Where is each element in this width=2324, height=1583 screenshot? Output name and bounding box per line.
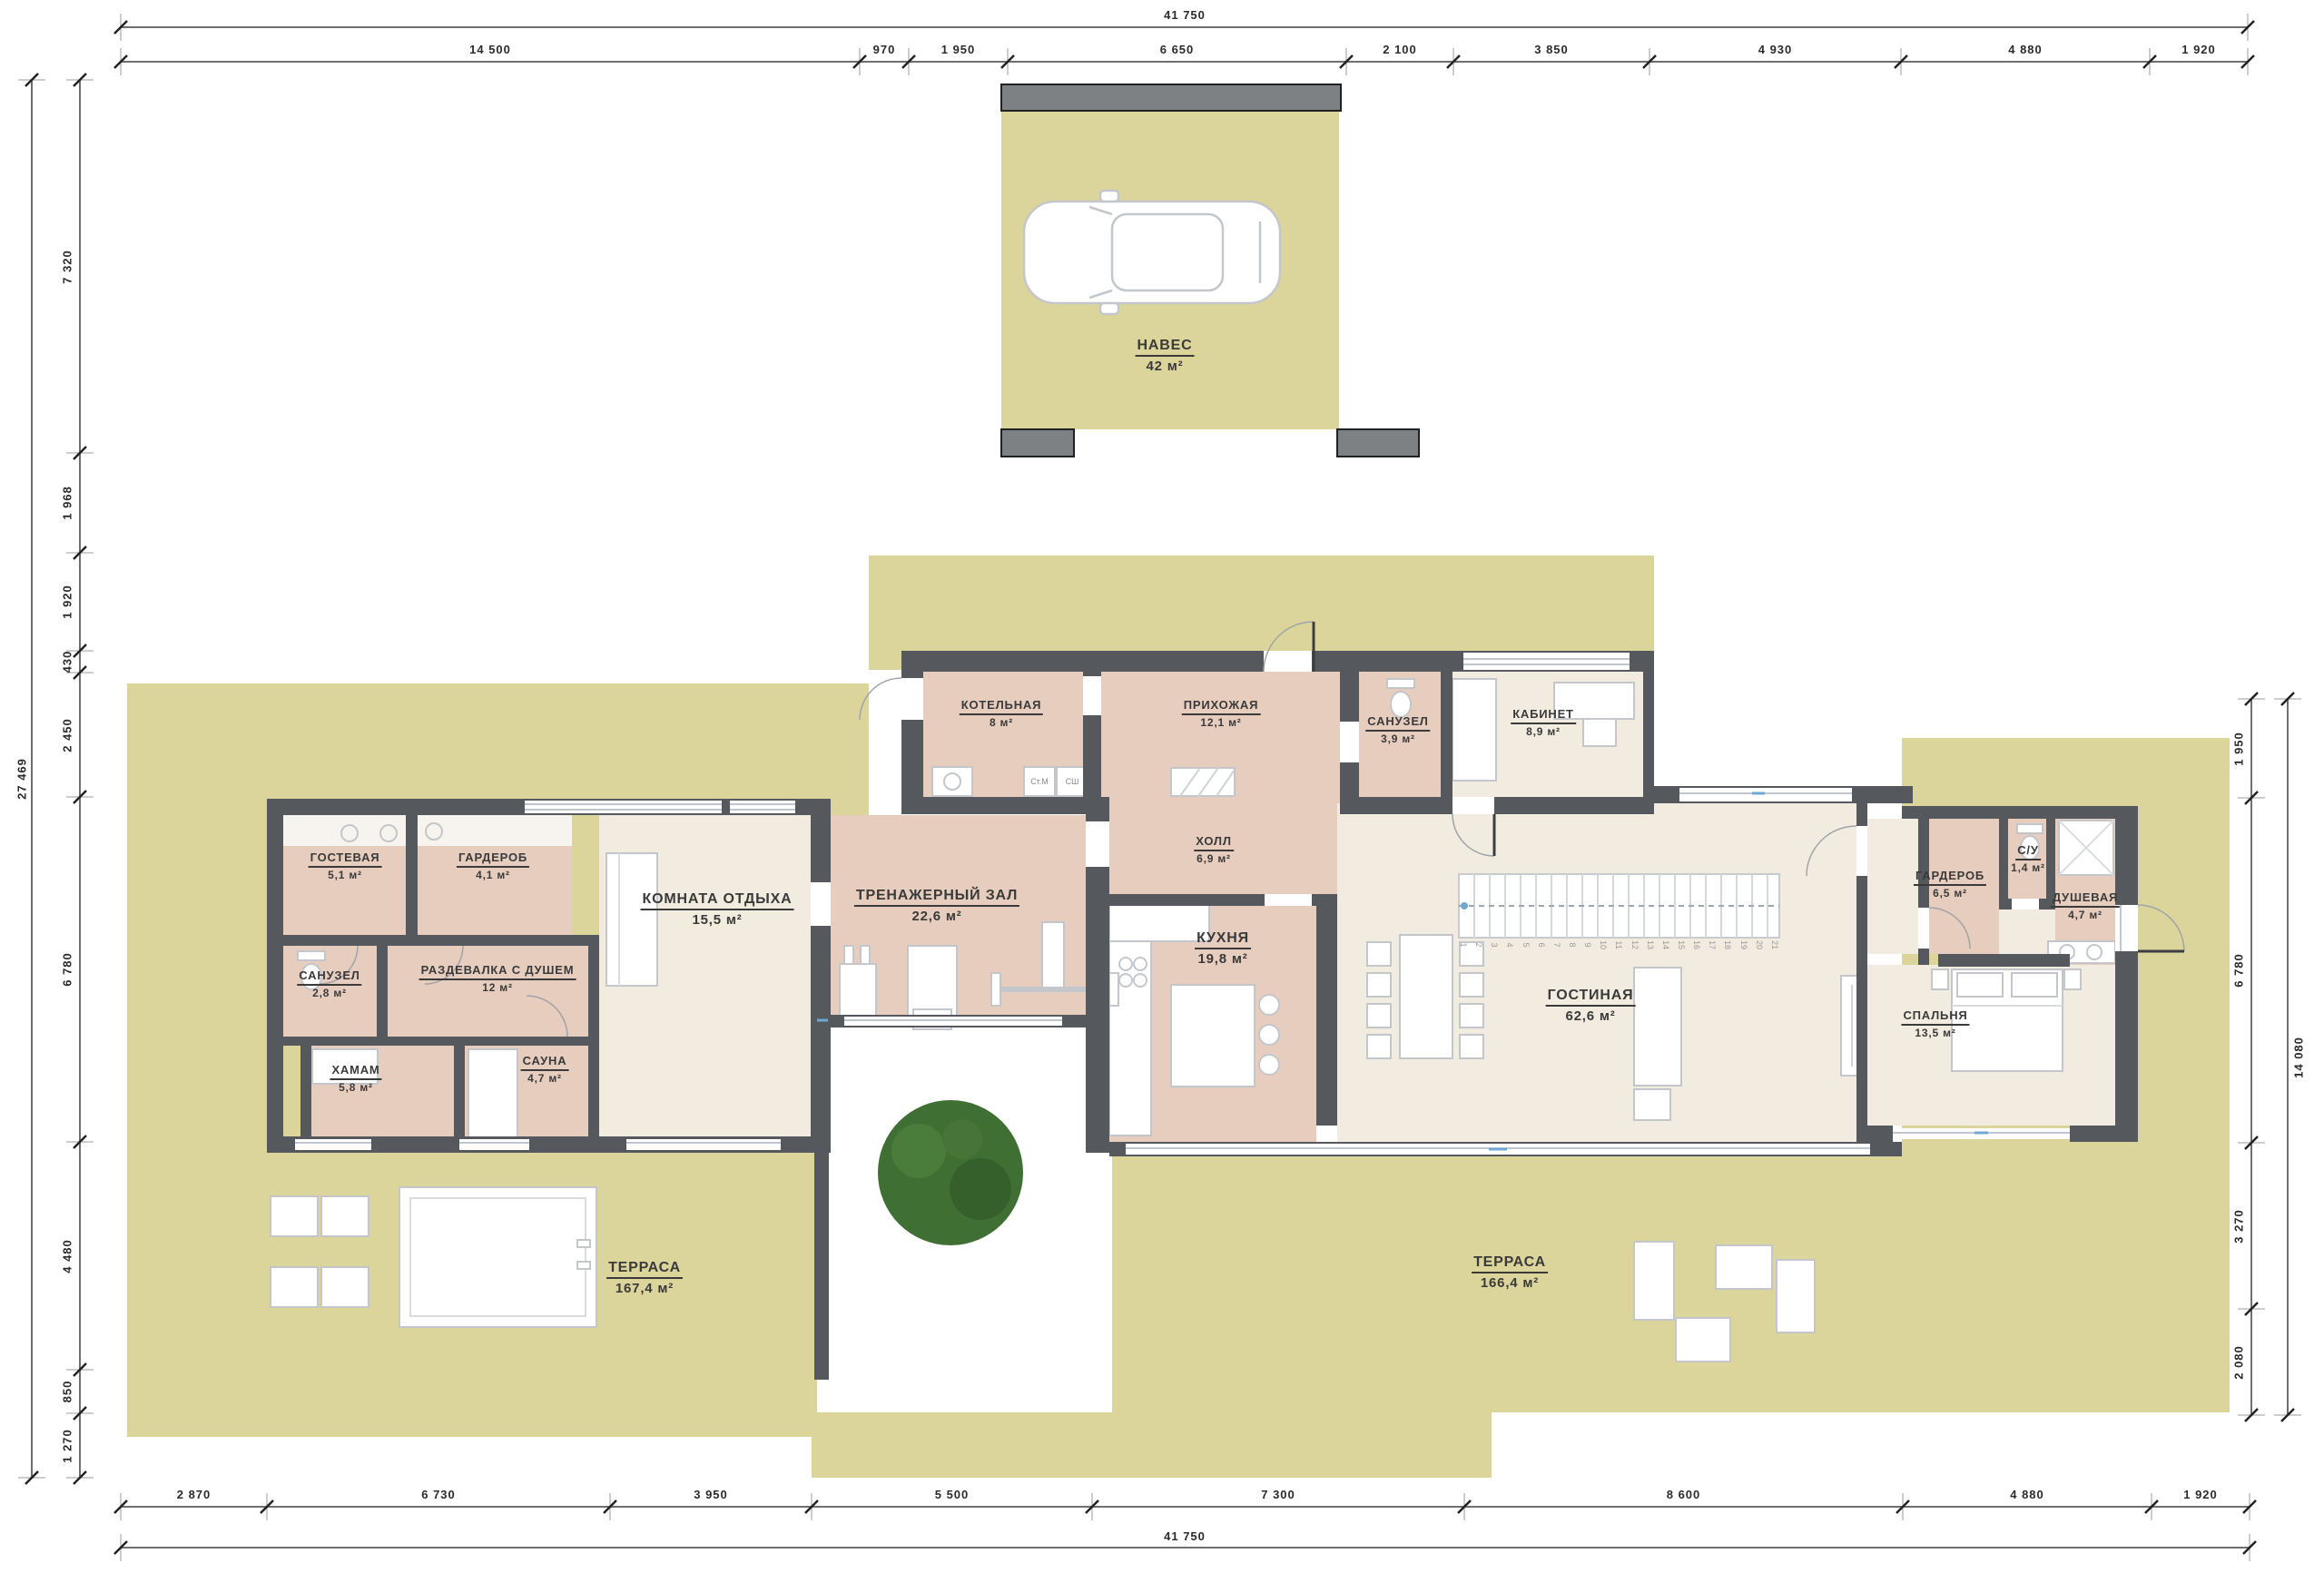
stair-step-number: 10 xyxy=(1599,940,1608,949)
pool-icon xyxy=(399,1187,596,1327)
dim-segment-label: 8 600 xyxy=(1667,1488,1701,1501)
dim-bottom-total: 41 750 xyxy=(1164,1529,1206,1543)
room-label-office: КАБИНЕТ8,9 м² xyxy=(1511,708,1576,739)
stair-step-number: 19 xyxy=(1739,940,1748,949)
dim-segment-label: 1 968 xyxy=(61,486,74,520)
stair-step-number: 9 xyxy=(1583,940,1592,949)
dining-set-icon xyxy=(1367,935,1483,1058)
dim-segment-label: 1 950 xyxy=(2232,732,2246,766)
stair-step-number: 6 xyxy=(1537,940,1546,949)
dim-segment-label: 4 880 xyxy=(2010,1488,2044,1501)
room-label-living: ГОСТИНАЯ62,6 м² xyxy=(1546,988,1636,1025)
room-label-wc-left: САНУЗЕЛ2,8 м² xyxy=(297,969,361,1000)
stair-step-number: 18 xyxy=(1723,940,1732,949)
dim-segment-label: 1 920 xyxy=(61,585,74,619)
dim-segment-label: 5 500 xyxy=(935,1488,970,1501)
stair-step-number: 21 xyxy=(1770,940,1779,949)
stair-step-number: 4 xyxy=(1505,940,1514,949)
dim-segment-label: 970 xyxy=(873,43,896,56)
room-label-guest: ГОСТЕВАЯ5,1 м² xyxy=(309,851,382,882)
terrace-right-label: ТЕРРАСА166,4 м² xyxy=(1472,1254,1548,1292)
dim-segment-label: 4 930 xyxy=(1758,43,1793,56)
closet-icon xyxy=(1171,768,1235,796)
room-label-bedroom: СПАЛЬНЯ13,5 м² xyxy=(1901,1009,1969,1040)
stair-step-number: 16 xyxy=(1692,940,1701,949)
terrace-left-label: ТЕРРАСА167,4 м² xyxy=(606,1260,683,1297)
dim-segment-label: 1 950 xyxy=(941,43,976,56)
stair-step-number: 3 xyxy=(1490,940,1499,949)
stair-step-number: 15 xyxy=(1677,940,1686,949)
dryer-label: СШ xyxy=(1066,777,1079,786)
dim-segment-label: 7 320 xyxy=(61,250,74,284)
dim-segment-label: 2 100 xyxy=(1383,43,1417,56)
carport-label: НАВЕС42 м² xyxy=(1136,338,1195,375)
tree-icon xyxy=(878,1100,1023,1245)
stair-step-number: 5 xyxy=(1521,940,1531,949)
dim-segment-label: 14 500 xyxy=(469,43,511,56)
room-label-sauna: САУНА4,7 м² xyxy=(521,1055,569,1086)
stair-step-number: 2 xyxy=(1474,940,1483,949)
dim-left-total: 27 469 xyxy=(15,758,29,800)
dim-right-total: 14 080 xyxy=(2292,1037,2306,1078)
room-label-wardrobe-right: ГАРДЕРОБ6,5 м² xyxy=(1914,870,1986,900)
room-label-hall: ХОЛЛ6,9 м² xyxy=(1194,835,1234,866)
stair-step-number: 7 xyxy=(1552,940,1561,949)
dim-segment-label: 850 xyxy=(61,1381,74,1403)
stair-step-number: 8 xyxy=(1568,940,1577,949)
car-icon xyxy=(1024,191,1280,314)
stair-step-number: 20 xyxy=(1755,940,1764,949)
room-label-shower: ДУШЕВАЯ4,7 м² xyxy=(2051,891,2120,922)
dim-segment-label: 4 880 xyxy=(2008,43,2043,56)
stair-step-number: 17 xyxy=(1708,940,1717,949)
dim-segment-label: 430 xyxy=(61,651,74,674)
dim-segment-label: 3 850 xyxy=(1534,43,1569,56)
room-label-kitchen: КУХНЯ19,8 м² xyxy=(1195,930,1251,968)
dim-segment-label: 1 920 xyxy=(2183,1488,2218,1501)
dim-segment-label: 2 870 xyxy=(177,1488,212,1501)
dim-segment-label: 6 780 xyxy=(61,952,74,987)
stairs-icon xyxy=(1459,874,1779,938)
dim-segment-label: 2 450 xyxy=(61,718,74,752)
room-label-gym: ТРЕНАЖЕРНЫЙ ЗАЛ22,6 м² xyxy=(854,888,1019,925)
dim-segment-label: 4 480 xyxy=(61,1239,74,1273)
shower-icon xyxy=(2059,821,2113,875)
dim-segment-label: 1 270 xyxy=(61,1429,74,1463)
dim-segment-label: 7 300 xyxy=(1261,1488,1295,1501)
floor-plan: ГОСТЕВАЯ5,1 м² ГАРДЕРОБ4,1 м² САНУЗЕЛ2,8… xyxy=(0,0,2324,1583)
room-label-boiler: КОТЕЛЬНАЯ8 м² xyxy=(960,699,1043,730)
dim-segment-label: 6 780 xyxy=(2232,953,2246,988)
dim-segment-label: 6 730 xyxy=(421,1488,456,1501)
dim-segment-label: 1 920 xyxy=(2181,43,2216,56)
room-label-hallway: ПРИХОЖАЯ12,1 м² xyxy=(1182,699,1261,730)
stair-step-number: 14 xyxy=(1661,940,1670,949)
room-label-changing: РАЗДЕВАЛКА С ДУШЕМ12 м² xyxy=(419,964,576,995)
room-label-wc-mid: САНУЗЕЛ3,9 м² xyxy=(1365,715,1430,746)
plan-drawing xyxy=(0,0,2324,1583)
stair-step-number: 11 xyxy=(1614,940,1623,949)
room-label-wardrobe-left: ГАРДЕРОБ4,1 м² xyxy=(457,851,529,882)
stairs-step-numbers: 123456789101112131415161718192021 xyxy=(1459,940,1779,949)
dim-segment-label: 3 950 xyxy=(694,1488,728,1501)
room-label-lounge: КОМНАТА ОТДЫХА15,5 м² xyxy=(641,891,794,929)
dim-segment-label: 3 270 xyxy=(2232,1209,2246,1244)
washer-label: Ст.М xyxy=(1030,777,1049,786)
room-label-hamam: ХАМАМ5,8 м² xyxy=(330,1064,381,1095)
dim-segment-label: 6 650 xyxy=(1160,43,1195,56)
dim-segment-label: 2 080 xyxy=(2232,1345,2246,1380)
stair-step-number: 13 xyxy=(1646,940,1655,949)
stair-step-number: 1 xyxy=(1459,940,1468,949)
room-label-wc-right: С/У1,4 м² xyxy=(2011,844,2045,875)
dim-top-total: 41 750 xyxy=(1164,8,1206,22)
stair-step-number: 12 xyxy=(1630,940,1640,949)
